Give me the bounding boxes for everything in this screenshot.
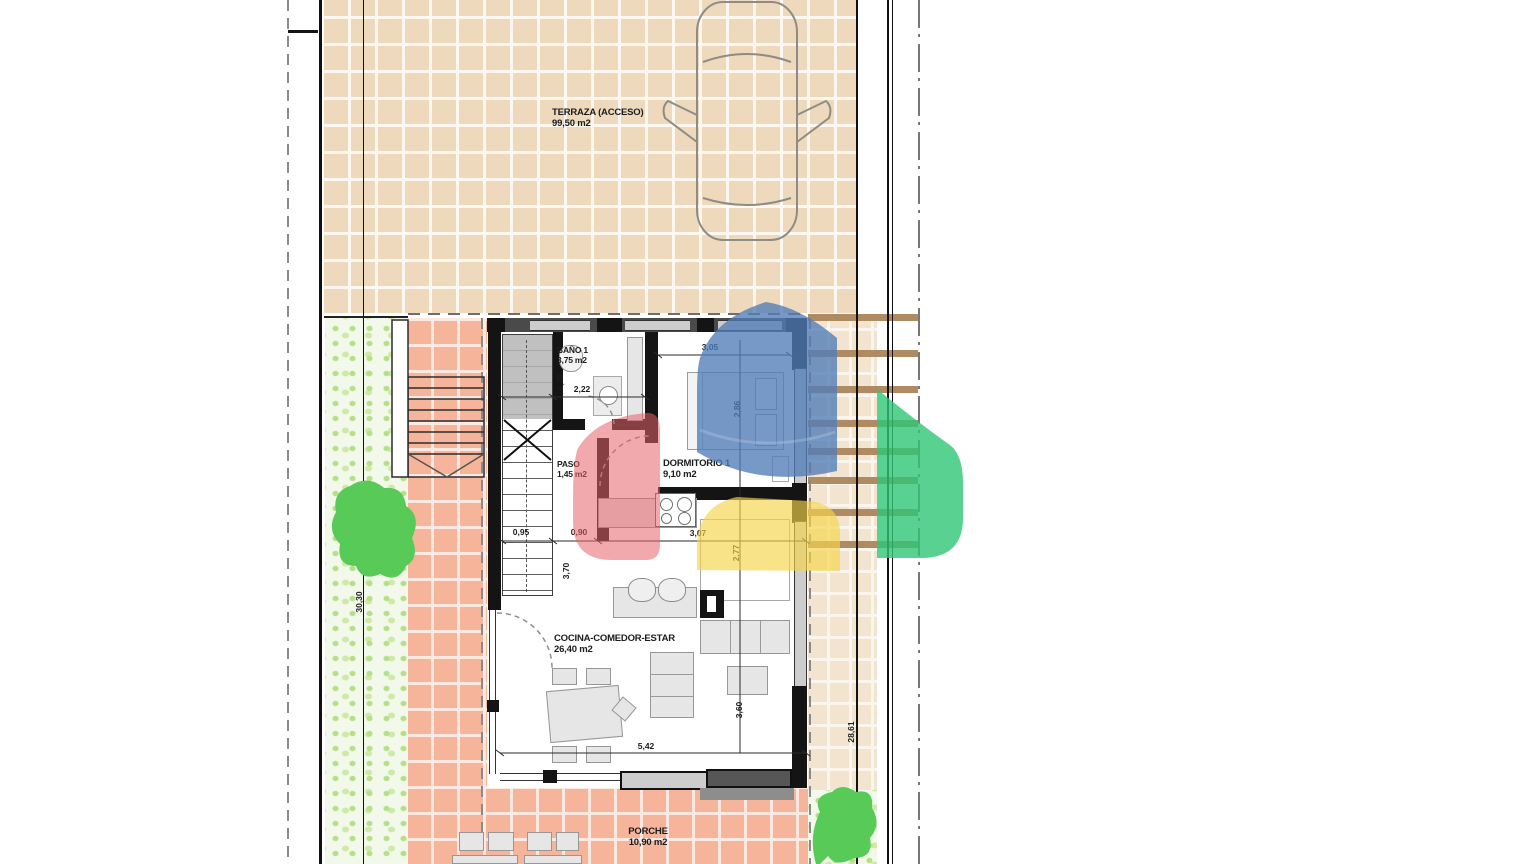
wall-bath-paso-a xyxy=(553,419,585,430)
dim-plot-left: 30,30 xyxy=(354,591,364,612)
room-label-bano: BAÑO 1 3,75 m2 xyxy=(557,345,588,365)
stove xyxy=(655,493,696,527)
plot-boundary-right-b xyxy=(892,0,893,864)
room-area: 99,50 m2 xyxy=(552,118,643,129)
outdoor-chair xyxy=(527,832,552,851)
sofa-vertical xyxy=(650,652,694,718)
pergola-bar xyxy=(808,420,918,427)
room-area: 10,90 m2 xyxy=(598,837,698,848)
dining-table xyxy=(546,685,623,743)
room-label-dormitorio: DORMITORIO 1 9,10 m2 xyxy=(663,458,730,480)
washbasin xyxy=(593,376,622,416)
window-top-2 xyxy=(625,320,690,331)
room-label-terraza: TERRAZA (ACCESO) 99,50 m2 xyxy=(552,107,643,129)
dim-bano-width: 2,22 xyxy=(574,384,591,394)
pillar xyxy=(597,318,622,332)
dim-dorm-width: 3,05 xyxy=(702,342,719,352)
staircase-storage xyxy=(503,335,552,419)
walkway xyxy=(408,318,487,864)
chair xyxy=(552,746,577,763)
stair-walkline xyxy=(526,340,527,592)
room-name: PASO xyxy=(557,459,580,469)
plot-boundary-left xyxy=(319,0,322,864)
pillar xyxy=(697,318,714,332)
dim-paso-length: 3,70 xyxy=(561,563,571,580)
room-label-paso: PASO 1,45 m2 xyxy=(557,459,587,479)
dim-cocina-depth: 3,60 xyxy=(734,702,744,719)
sofa-horizontal xyxy=(700,620,790,654)
shower xyxy=(627,337,643,421)
pergola-bar xyxy=(808,448,918,455)
room-area: 1,45 m2 xyxy=(557,469,587,479)
dim-paso-width: 0,90 xyxy=(571,527,588,537)
pergola-bar xyxy=(808,509,918,516)
dim-dorm-depth: 2,86 xyxy=(732,401,742,418)
floor-plan-canvas: TERRAZA (ACCESO) 99,50 m2 BAÑO 1 3,75 m2… xyxy=(0,0,1536,864)
armchair xyxy=(727,666,768,695)
pergola-bar xyxy=(808,314,918,321)
terrace-edge-dash xyxy=(408,313,808,315)
outdoor-chair xyxy=(488,832,514,851)
pergola-bar xyxy=(808,350,918,357)
room-name: TERRAZA (ACCESO) xyxy=(552,107,643,118)
fence-dash-right xyxy=(809,318,811,864)
dim-kitchen-depth: 2,77 xyxy=(731,545,741,562)
dim-stair-width: 0,95 xyxy=(513,527,530,537)
window-right-2 xyxy=(794,521,807,690)
mullion xyxy=(487,700,499,712)
dimension-line-right xyxy=(856,0,858,864)
glazing-bottom xyxy=(500,773,622,781)
pergola-bar xyxy=(808,386,918,393)
outdoor-chair xyxy=(459,832,484,851)
view-cone-green xyxy=(877,389,963,558)
room-area: 26,40 m2 xyxy=(554,644,675,655)
wall-kitchen-return xyxy=(700,590,724,618)
window-top-1 xyxy=(530,320,590,331)
room-name: DORMITORIO 1 xyxy=(663,458,730,469)
wall-left xyxy=(488,318,501,610)
pergola-bar xyxy=(808,477,918,484)
outdoor-table xyxy=(524,855,582,864)
sliding-door-bottom xyxy=(706,769,792,788)
wall-right xyxy=(792,686,807,788)
wall-right xyxy=(792,483,807,523)
bedside-table xyxy=(772,456,789,482)
dim-cocina-width: 5,42 xyxy=(638,741,655,751)
property-dash-line-left xyxy=(287,0,289,864)
window-top-3 xyxy=(718,320,782,331)
chair xyxy=(552,668,577,685)
terrace-area xyxy=(324,0,857,313)
sink-bowl xyxy=(628,578,656,602)
window-right-1 xyxy=(794,368,807,485)
dimension-line-left xyxy=(363,0,364,864)
fence-dash-walkway xyxy=(481,318,483,864)
room-area: 9,10 m2 xyxy=(663,469,730,480)
garden-patch-bottom-right xyxy=(808,790,877,864)
dim-bano-side: 1,70 xyxy=(555,374,565,391)
dim-kitchen-width: 3,07 xyxy=(690,528,707,538)
garden-top-edge xyxy=(324,316,408,318)
sink-bowl xyxy=(658,578,686,602)
room-label-cocina: COCINA-COMEDOR-ESTAR 26,40 m2 xyxy=(554,633,675,655)
chair xyxy=(586,746,611,763)
outdoor-chair xyxy=(556,832,579,851)
wall-dorm-door-jamb xyxy=(645,425,658,443)
survey-tick xyxy=(288,30,318,33)
room-name: BAÑO 1 xyxy=(557,345,588,355)
kitchen-return-outline xyxy=(700,519,790,601)
pergola-bar xyxy=(808,541,918,548)
mullion xyxy=(543,770,557,783)
dim-plot-right: 28,61 xyxy=(846,721,856,742)
room-name: COCINA-COMEDOR-ESTAR xyxy=(554,633,675,644)
street-axis-line xyxy=(918,0,920,864)
wall-right xyxy=(792,318,807,370)
chair xyxy=(586,668,611,685)
porch-step xyxy=(700,788,794,800)
window-bottom xyxy=(620,771,710,790)
wall-bath-dorm xyxy=(645,332,658,425)
outdoor-table xyxy=(452,855,518,864)
room-name: PORCHE xyxy=(628,826,667,837)
room-label-porche: PORCHE 10,90 m2 xyxy=(598,826,698,848)
room-area: 3,75 m2 xyxy=(557,355,588,365)
garden-strip-left xyxy=(325,318,408,864)
glazing-left xyxy=(489,610,496,774)
plot-boundary-right-a xyxy=(887,0,889,864)
